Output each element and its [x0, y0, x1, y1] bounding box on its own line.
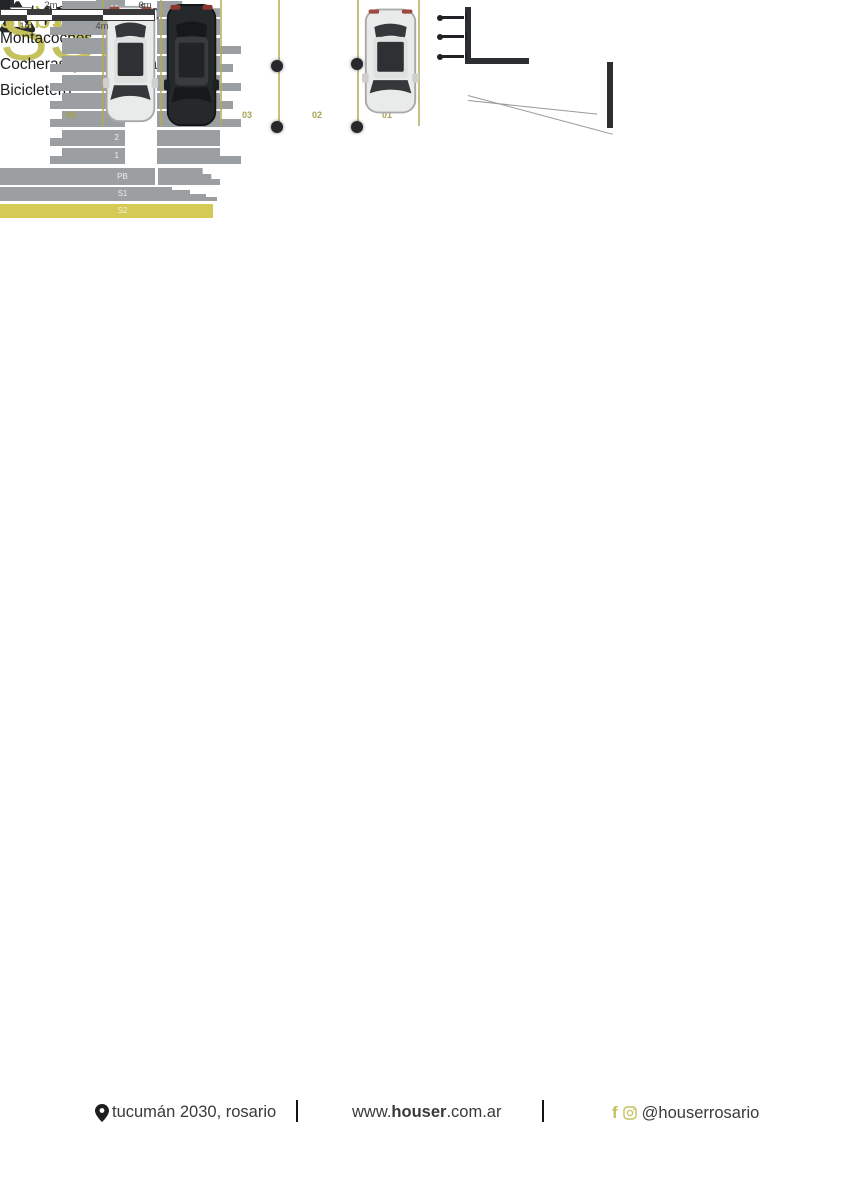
s1-step: [190, 194, 206, 201]
footer-social: f @houserrosario: [612, 1103, 759, 1123]
exterior-wall: [607, 62, 613, 128]
scale-segment: [1, 15, 27, 20]
location-pin-icon: [95, 1104, 112, 1122]
base-level-label: PB: [95, 168, 150, 185]
floor-step: [50, 83, 62, 91]
car-white-top-view: [362, 7, 419, 115]
floor-tab: [220, 46, 241, 54]
floor-tab: [220, 119, 241, 127]
floor-step: [50, 119, 62, 127]
parking-spot-label: 06: [54, 110, 88, 120]
parking-divider-line: [160, 0, 162, 126]
scale-label: 2m: [38, 0, 64, 11]
url-suffix: .com.ar: [446, 1103, 501, 1121]
footer-address: tucumán 2030, rosario: [112, 1103, 276, 1122]
parking-spot-label: 02: [300, 110, 334, 120]
facebook-icon: f: [612, 1103, 618, 1123]
bike-rack-icon: [437, 13, 467, 21]
floor-tab: [220, 83, 241, 91]
base-level-label: S2: [95, 204, 150, 218]
floor-step: [50, 138, 62, 146]
url-prefix: www.: [352, 1103, 391, 1121]
scale-segment: [103, 15, 154, 20]
parking-spot-label: 03: [230, 110, 264, 120]
parking-divider-line: [220, 0, 222, 126]
page: housertucumán Houser SS2 subsuelo 2 Nive…: [0, 0, 844, 1200]
stair-wall: [465, 58, 529, 64]
footer-divider: [542, 1100, 544, 1122]
bike-rack-icon: [437, 52, 467, 60]
scale-segment: [52, 15, 103, 20]
floor-tab: [220, 156, 241, 164]
footer-divider: [296, 1100, 298, 1122]
floor-label: 1: [62, 148, 123, 164]
url-bold: houser: [391, 1103, 446, 1121]
s1-step: [172, 190, 190, 201]
floor-step: [50, 27, 62, 35]
social-handle: @houserrosario: [642, 1104, 760, 1123]
scale-segment: [27, 15, 53, 20]
ramp-edge-line: [468, 95, 613, 135]
column-dot: [271, 60, 283, 72]
footer-website: www.houser.com.ar: [352, 1103, 501, 1122]
pb-block-right: [158, 168, 220, 185]
floor-step: [50, 64, 62, 72]
scale-label: 6m: [132, 0, 158, 11]
s1-step: [206, 197, 217, 201]
floor-block: [157, 148, 220, 164]
bike-rack-icon: [437, 32, 467, 40]
scale-label: 1m: [13, 21, 39, 32]
column-dot: [271, 121, 283, 133]
scale-label: 4m: [89, 21, 115, 32]
column-dot: [351, 121, 363, 133]
floor-block: [157, 130, 220, 146]
car-black-top-view: [164, 2, 219, 128]
floor-label: 2: [62, 130, 123, 146]
instagram-icon: [623, 1106, 637, 1120]
base-level-label: S1: [95, 187, 150, 201]
floor-step: [50, 156, 62, 164]
floor-step: [50, 101, 62, 109]
